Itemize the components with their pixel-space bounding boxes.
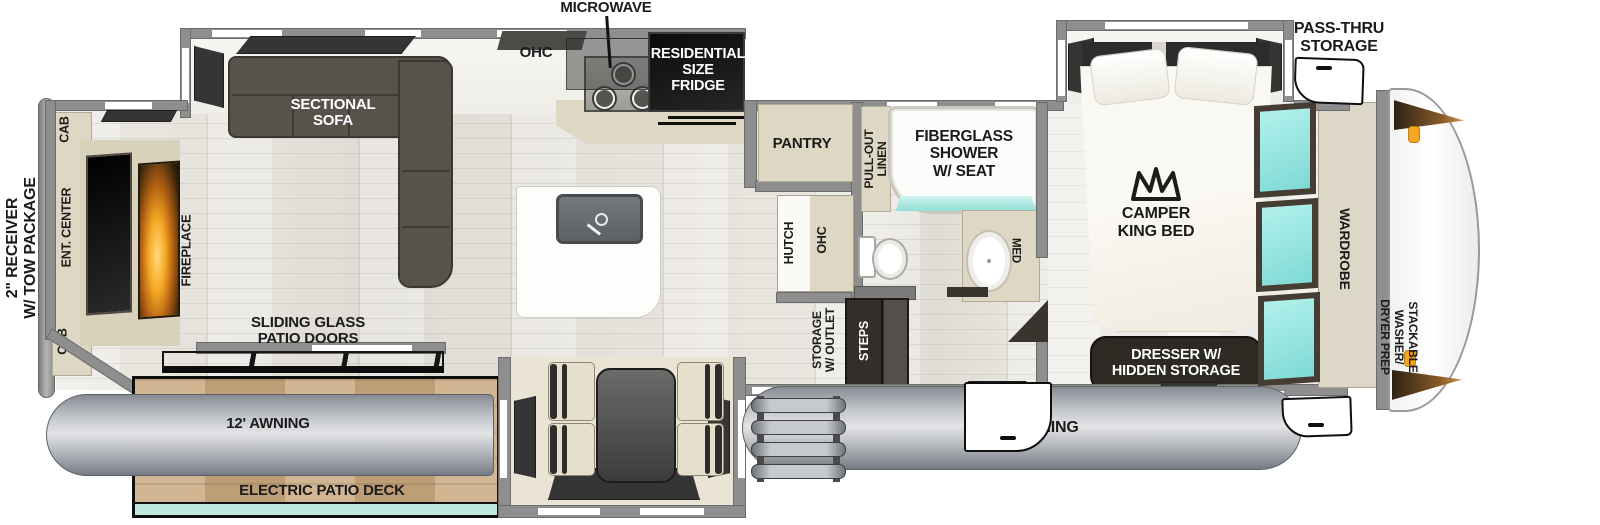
sofa-cushion-line xyxy=(402,226,450,228)
chair-arm xyxy=(550,364,557,419)
chair-arm xyxy=(715,364,722,419)
patio-glass-band xyxy=(162,351,444,373)
shower-label: FIBERGLASS SHOWER W/ SEAT xyxy=(888,116,1040,192)
shower-teal-edge xyxy=(896,196,1036,211)
storage-outlet-label: STORAGE W/ OUTLET xyxy=(810,296,838,384)
washer-label: STACKABLE WASHER/ DRYER PREP xyxy=(1376,287,1420,387)
med-label: MED xyxy=(1009,232,1022,270)
cap-marker-light xyxy=(1408,126,1420,143)
microwave-label: MICROWAVE xyxy=(540,0,672,17)
sofa-label: SECTIONAL SOFA xyxy=(258,92,408,134)
hutch-ohc-label: OHC xyxy=(816,218,830,262)
steps-tread xyxy=(884,300,907,384)
front-window xyxy=(1258,292,1320,386)
bed-label: CAMPER KING BED xyxy=(1096,202,1216,244)
patio-doors-label: SLIDING GLASS PATIO DOORS xyxy=(228,312,388,350)
entry-step xyxy=(751,420,846,435)
front-window xyxy=(1256,198,1318,292)
sink-drain-dot xyxy=(987,259,991,263)
chair-arm xyxy=(562,364,567,419)
front-window xyxy=(1254,102,1316,198)
fridge-door-line xyxy=(658,122,736,125)
fridge-label: RESIDENTIAL SIZE FRIDGE xyxy=(640,40,756,102)
fireplace-insert xyxy=(138,161,180,320)
wall-window-gap xyxy=(640,508,704,515)
entry-step xyxy=(751,442,846,457)
pillow xyxy=(1174,46,1259,106)
dinette-bottom-wall xyxy=(498,505,746,518)
pass-thru-door xyxy=(1293,57,1365,105)
chair-arm xyxy=(550,425,557,474)
front-compartment-door xyxy=(1281,396,1352,438)
awning-12ft xyxy=(46,394,494,476)
patio-deck-label: ELECTRIC PATIO DECK xyxy=(222,481,422,501)
wall-window-gap xyxy=(182,48,189,103)
rear-left-wall xyxy=(45,100,56,340)
fridge-door-line xyxy=(668,116,746,119)
ohc-label: OHC xyxy=(504,45,568,62)
sofa-side-window xyxy=(194,46,224,108)
wall-window-gap xyxy=(538,508,600,515)
entry-door xyxy=(964,382,1052,452)
dresser-label: DRESSER W/ HIDDEN STORAGE xyxy=(1090,340,1262,388)
deck-teal-edge xyxy=(135,502,497,515)
fridge-pantry-wall xyxy=(744,100,757,188)
front-compartment-door-handle xyxy=(1308,423,1324,427)
steps-tread-line xyxy=(881,300,883,384)
rear-window xyxy=(101,110,177,122)
hutch-label: HUTCH xyxy=(783,209,797,277)
entry-step xyxy=(751,398,846,413)
chair-arm xyxy=(715,425,722,474)
dinette-table xyxy=(596,368,676,483)
receiver-label: 2" RECEIVER W/ TOW PACKAGE xyxy=(3,146,41,350)
tv-screen xyxy=(86,152,132,315)
chair-arm xyxy=(705,425,710,474)
crown-icon xyxy=(1128,166,1184,204)
wall-window-gap xyxy=(105,102,152,109)
steps-label: STEPS xyxy=(858,309,872,373)
awning-12ft-label: 12' AWNING xyxy=(200,414,336,434)
wall-window-gap xyxy=(1105,22,1248,29)
chair-arm xyxy=(705,364,710,419)
pantry-label: PANTRY xyxy=(758,135,846,153)
fireplace-label: FIREPLACE xyxy=(180,194,195,308)
burner-icon xyxy=(594,88,615,109)
pass-thru-door-handle xyxy=(1316,66,1332,70)
pass-thru-label: PASS-THRU STORAGE xyxy=(1258,18,1420,58)
sofa-top-window xyxy=(236,36,416,54)
bath-door-panel xyxy=(947,287,988,297)
wardrobe-label: WARDROBE xyxy=(1336,193,1352,305)
chair-arm xyxy=(562,425,567,474)
sofa-cushion-line xyxy=(402,170,450,172)
linen-label: PULL-OUT LINEN xyxy=(862,121,890,197)
toilet-icon-bowl xyxy=(872,238,908,280)
pillow xyxy=(1089,48,1171,107)
wall-window-gap xyxy=(212,30,282,37)
dinette-side-window-left xyxy=(514,396,536,478)
wall-window-gap xyxy=(365,30,421,37)
entry-door-handle xyxy=(1000,436,1016,440)
rv-floorplan: 2" RECEIVER W/ TOW PACKAGE CAB ENT. CENT… xyxy=(0,0,1600,525)
bath-bed-wall-upper xyxy=(1036,102,1048,258)
faucet-icon xyxy=(595,213,608,226)
cab-top-label: CAB xyxy=(58,109,73,151)
wall-window-gap xyxy=(1058,40,1065,96)
entry-step xyxy=(751,464,846,479)
ent-center-label: ENT. CENTER xyxy=(60,167,75,289)
wall-window-gap xyxy=(500,400,507,478)
